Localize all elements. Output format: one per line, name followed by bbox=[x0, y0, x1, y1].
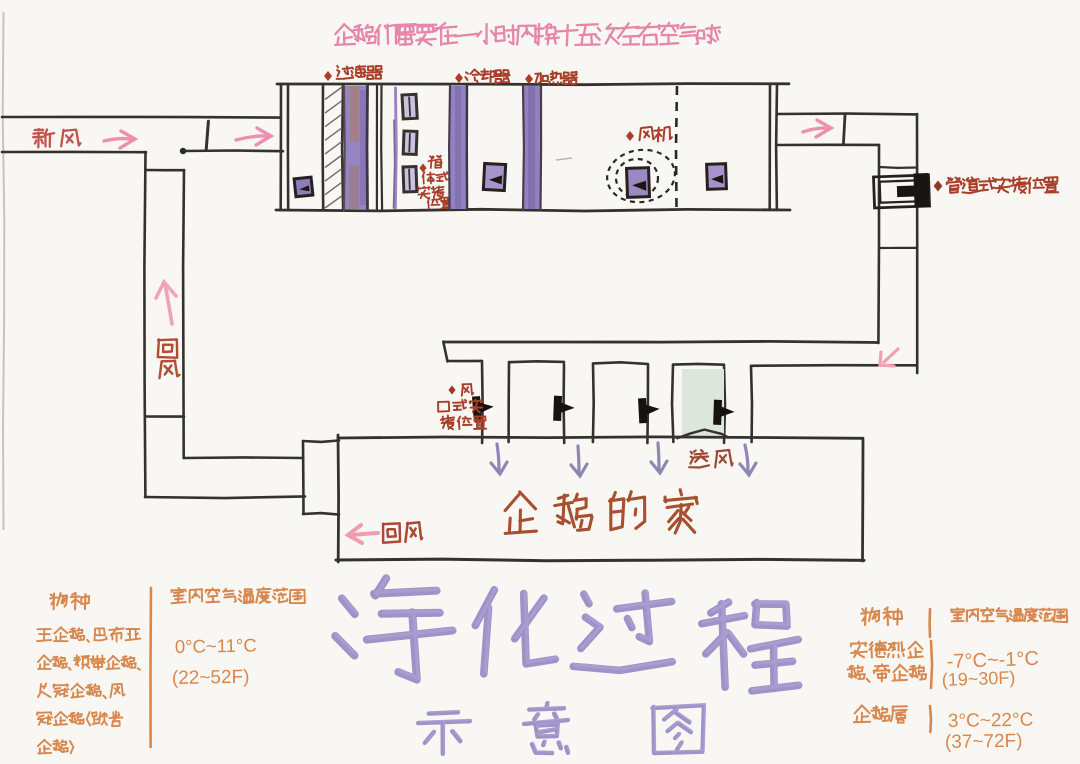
svg-text:(19~30F): (19~30F) bbox=[941, 667, 1015, 690]
svg-text:(37~72F): (37~72F) bbox=[945, 731, 1023, 753]
svg-text:3°C~22°C: 3°C~22°C bbox=[948, 710, 1034, 732]
svg-text:0°C~11°C: 0°C~11°C bbox=[175, 635, 257, 657]
svg-text:(22~52F): (22~52F) bbox=[172, 667, 250, 689]
